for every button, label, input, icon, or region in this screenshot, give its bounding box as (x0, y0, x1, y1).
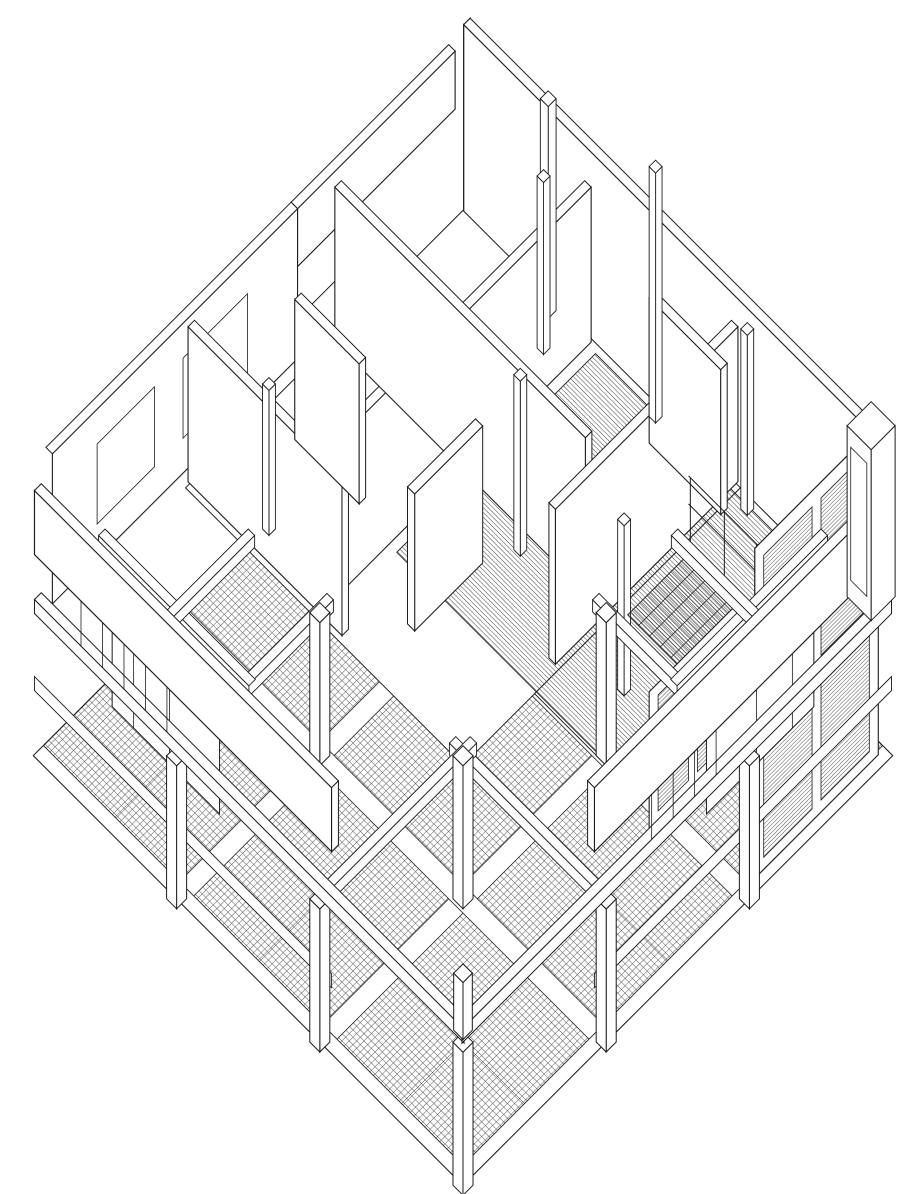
paper-sheet (0, 0, 914, 1194)
axonometric-drawing (0, 0, 914, 1194)
